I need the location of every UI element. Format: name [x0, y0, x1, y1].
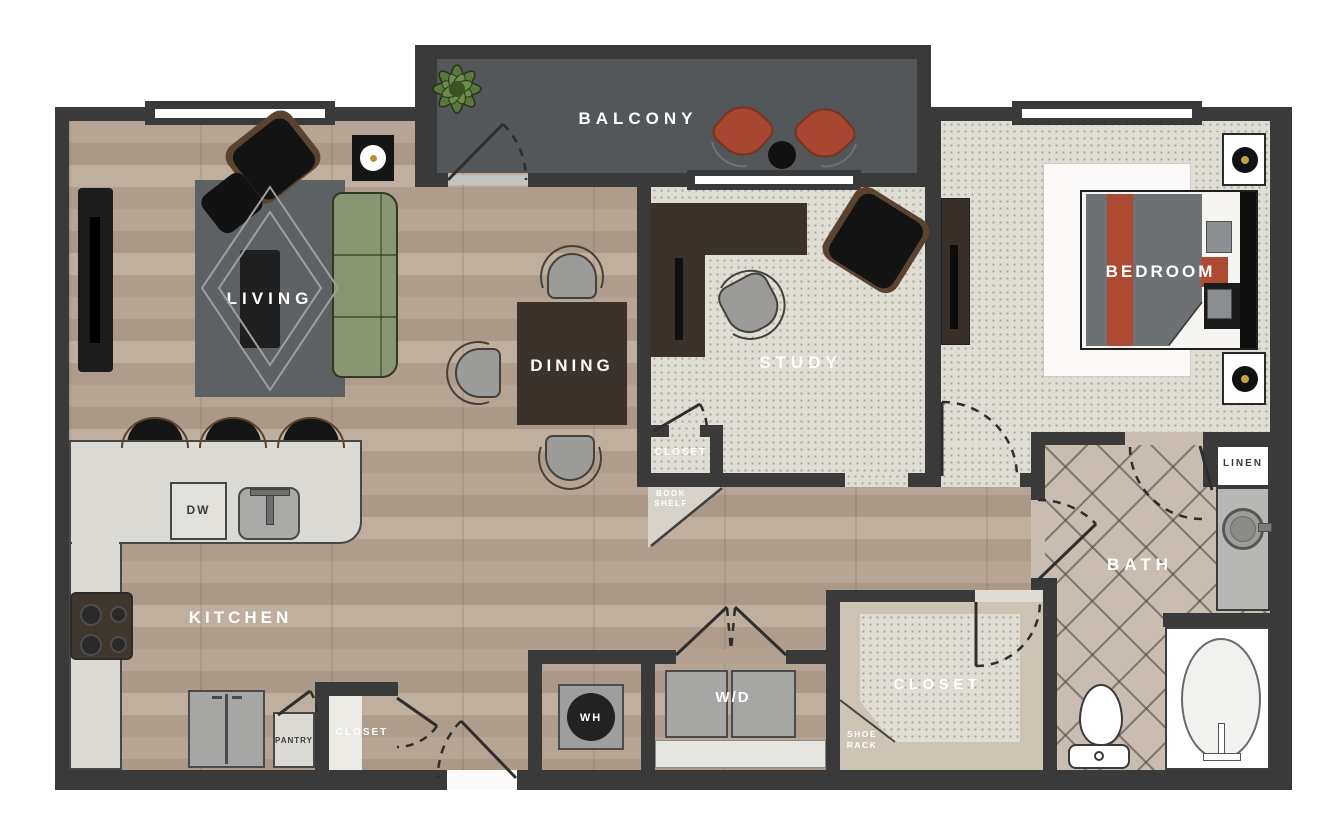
pantry-label: PANTRY	[272, 736, 316, 746]
entry-threshold	[447, 770, 517, 790]
tub-faucet-bar	[1203, 753, 1241, 761]
laundry-counter	[655, 740, 826, 768]
study-entry-floor	[845, 473, 908, 487]
balcony-label: BALCONY	[548, 108, 728, 130]
living-label: LIVING	[210, 288, 330, 310]
sofa-seam	[334, 254, 396, 256]
counter-seam-patch	[72, 540, 119, 546]
balcony-table	[768, 141, 796, 169]
study-label: STUDY	[748, 352, 853, 374]
shoe-rack-label: SHOE RACK	[838, 729, 886, 751]
wall-segment	[1031, 432, 1125, 445]
desk-slot	[675, 258, 683, 340]
dining-chair	[547, 253, 597, 299]
wall-segment	[55, 770, 447, 790]
tv-console	[78, 188, 113, 372]
record-dot	[370, 155, 377, 162]
fridge-handle	[232, 696, 242, 699]
sofa-seam	[334, 316, 396, 318]
wall-segment	[1043, 590, 1057, 770]
wall-segment	[655, 650, 676, 664]
dresser	[941, 198, 970, 345]
wall-segment	[315, 682, 398, 696]
headboard	[1240, 192, 1256, 348]
study-closet-label: CLOSET	[650, 446, 712, 459]
toilet-button	[1094, 751, 1104, 761]
balcony-wall	[415, 45, 437, 187]
floor-plan: BALCONY LIVING DINING STUDY BEDROOM KITC…	[0, 0, 1336, 827]
tub-nook	[1165, 627, 1270, 770]
linen-label: LINEN	[1218, 457, 1268, 470]
bath-bedroom-opening	[1125, 432, 1203, 445]
dresser-slot	[950, 245, 958, 329]
window	[1022, 109, 1192, 118]
book-shelf-label: BOOK SHELF	[648, 489, 694, 510]
sofa-back-line	[380, 194, 382, 376]
stove	[70, 592, 133, 660]
burner	[110, 636, 127, 653]
balcony-door-threshold	[448, 175, 528, 185]
dining-label: DINING	[517, 355, 627, 377]
fridge-handle	[212, 696, 222, 699]
burner	[80, 604, 102, 626]
refrigerator	[188, 690, 265, 768]
balcony-wall	[415, 45, 931, 59]
bed-pillow	[1207, 289, 1232, 319]
burner	[110, 606, 127, 623]
wall-segment	[637, 473, 845, 487]
balcony-wall	[858, 173, 931, 187]
washer-dryer-label: W/D	[698, 688, 768, 708]
wall-segment	[517, 770, 1292, 790]
bath-label: BATH	[1095, 554, 1185, 576]
wall-segment	[786, 650, 826, 664]
burner	[80, 634, 102, 656]
desk	[650, 203, 807, 255]
wall-segment	[55, 107, 69, 790]
wall-segment	[1203, 445, 1217, 487]
vanity-sink-bowl	[1230, 516, 1256, 542]
study-closet-opening	[669, 425, 700, 437]
nightstand	[1222, 133, 1266, 186]
tv-console-slot	[90, 217, 100, 343]
dishwasher-label: DW	[170, 503, 227, 519]
kitchen-label: KITCHEN	[178, 607, 303, 629]
faucet-stem	[266, 495, 274, 525]
bedroom-door-opening	[941, 473, 1020, 487]
vanity-faucet	[1258, 523, 1272, 532]
lamp-dot	[1241, 156, 1249, 164]
bedroom-label: BEDROOM	[1088, 261, 1233, 283]
wall-segment	[528, 650, 542, 770]
closet-door-opening	[975, 590, 1043, 602]
wall-segment	[651, 425, 669, 437]
window	[695, 176, 853, 184]
bath-hall-opening	[1031, 500, 1045, 578]
lamp-dot	[1241, 375, 1249, 383]
wall-segment	[528, 650, 655, 664]
wall-segment	[637, 187, 651, 487]
walk-in-closet-label: CLOSET	[880, 675, 995, 695]
laundry-door-opening	[676, 650, 786, 664]
balcony-wall	[415, 173, 448, 187]
wall-segment	[700, 425, 723, 437]
wall-segment	[1270, 107, 1292, 790]
wall-segment	[1163, 613, 1270, 627]
sofa	[332, 192, 398, 378]
water-heater-label: WH	[566, 711, 616, 725]
nightstand	[1222, 352, 1266, 405]
wall-segment	[641, 650, 655, 770]
wall-segment	[840, 590, 975, 602]
bed-pillow	[1206, 221, 1232, 253]
toilet-bowl	[1079, 684, 1123, 746]
wall-segment	[1203, 432, 1292, 445]
dining-chair	[455, 348, 501, 398]
window	[155, 109, 325, 118]
fridge-door-split	[225, 694, 228, 764]
record-player	[352, 135, 394, 181]
wall-segment	[925, 121, 941, 487]
balcony-wall	[528, 173, 690, 187]
hall-closet-label: CLOSET	[328, 726, 396, 739]
